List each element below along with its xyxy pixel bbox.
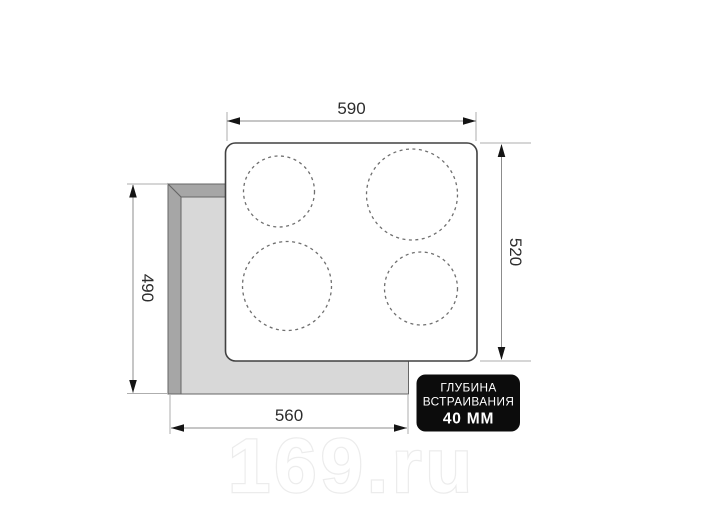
dimension-label-right: 520 <box>506 238 525 266</box>
dimension-left-height: 490 <box>127 184 168 394</box>
arrow-right-icon <box>463 117 476 125</box>
dimension-label-bottom: 560 <box>275 406 303 425</box>
dimension-label-top: 590 <box>337 99 365 118</box>
badge-depth-value: 40 ММ <box>443 411 494 428</box>
arrow-left-icon <box>171 424 184 432</box>
cutout-bevel-left <box>168 184 181 394</box>
cooktop-panel <box>226 143 478 361</box>
depth-badge: ГЛУБИНА ВСТРАИВАНИЯ 40 ММ <box>417 375 521 432</box>
arrow-down-icon <box>498 347 506 360</box>
dimension-right-height: 520 <box>480 143 531 361</box>
cooktop-panel-group <box>226 143 478 361</box>
arrow-up-icon <box>498 144 506 157</box>
dimension-top-width: 590 <box>227 99 476 141</box>
installation-diagram: 169.ru 590 520 490 <box>0 0 702 523</box>
arrow-up-icon <box>129 185 137 198</box>
arrow-left-icon <box>227 117 240 125</box>
badge-line-2: ВСТРАИВАНИЯ <box>423 395 515 409</box>
watermark-logo: 169.ru <box>228 424 476 509</box>
arrow-down-icon <box>129 380 137 393</box>
dimension-label-left: 490 <box>138 274 157 302</box>
badge-line-1: ГЛУБИНА <box>440 381 496 395</box>
dimension-bottom-width: 560 <box>170 395 408 434</box>
